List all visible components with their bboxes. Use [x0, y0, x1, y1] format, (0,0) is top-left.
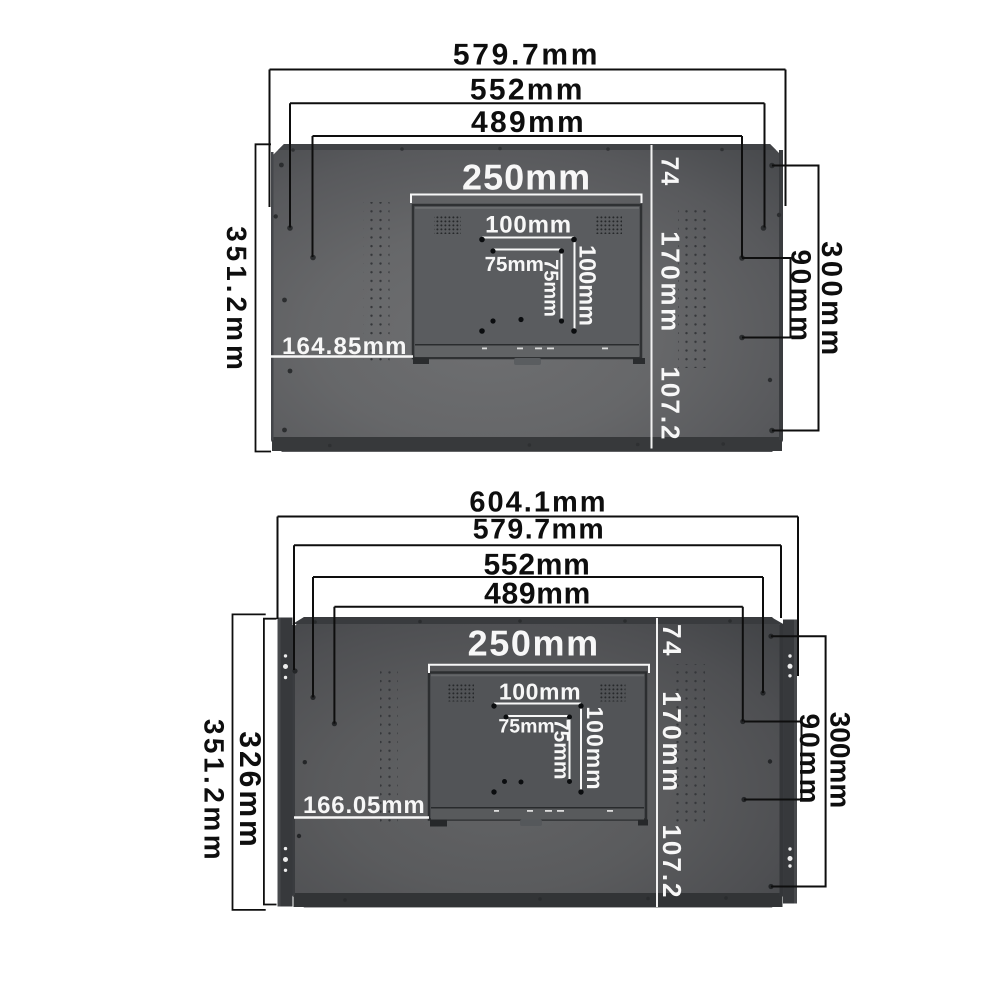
svg-text:579.7mm: 579.7mm [453, 39, 600, 72]
svg-text:107.2: 107.2 [657, 824, 687, 899]
svg-text:300mm: 300mm [825, 712, 856, 809]
svg-text:170mm: 170mm [657, 691, 687, 794]
svg-text:351.2mm: 351.2mm [199, 719, 230, 863]
svg-text:166.05mm: 166.05mm [303, 792, 426, 819]
svg-text:579.7mm: 579.7mm [473, 514, 606, 546]
svg-text:74: 74 [657, 624, 687, 658]
svg-text:170mm: 170mm [656, 231, 686, 334]
svg-text:552mm: 552mm [470, 74, 585, 107]
svg-text:300mm: 300mm [815, 241, 847, 358]
svg-text:100mm: 100mm [575, 245, 601, 326]
svg-text:74: 74 [656, 156, 684, 186]
svg-text:107.2: 107.2 [656, 366, 686, 441]
svg-text:100mm: 100mm [485, 212, 572, 239]
svg-text:100mm: 100mm [582, 706, 608, 790]
svg-text:489mm: 489mm [471, 106, 586, 139]
svg-text:90mm: 90mm [794, 714, 825, 807]
svg-text:75mm: 75mm [485, 253, 544, 276]
svg-text:326mm: 326mm [233, 731, 266, 849]
svg-text:351.2mm: 351.2mm [221, 226, 252, 374]
svg-text:250mm: 250mm [468, 623, 600, 664]
svg-text:100mm: 100mm [499, 679, 581, 705]
svg-text:75mm: 75mm [540, 259, 562, 317]
svg-text:489mm: 489mm [484, 577, 591, 610]
svg-text:250mm: 250mm [462, 157, 591, 198]
